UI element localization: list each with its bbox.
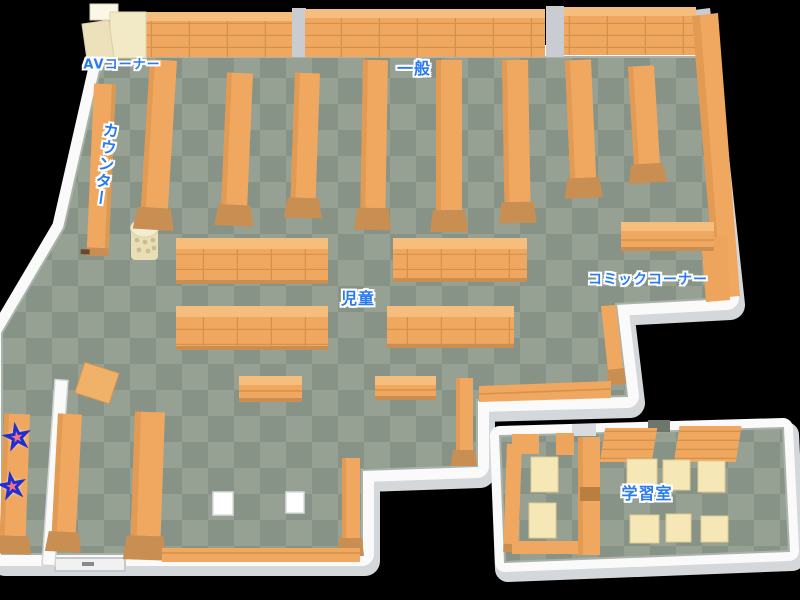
- white-table: [213, 492, 233, 515]
- kids-shelf: [393, 238, 527, 282]
- label-study-room: 学習室: [621, 480, 672, 504]
- kids-shelf: [176, 306, 328, 350]
- star-marker-icon: ★: [3, 422, 32, 453]
- kids-shelf: [176, 238, 328, 284]
- study-table: [698, 461, 725, 492]
- comic-corner-shelf: [621, 222, 714, 251]
- study-table: [531, 457, 558, 492]
- entrance-door: [55, 558, 125, 571]
- kids-low-table: [375, 376, 436, 400]
- wall-gap: [292, 8, 306, 57]
- door-handle-icon: [82, 562, 94, 566]
- kids-low-table: [239, 376, 302, 402]
- study-shelf: [674, 426, 742, 462]
- label-comic-corner: コミックコーナー: [588, 269, 708, 289]
- study-divider-shelf: [578, 437, 600, 555]
- kids-shelf: [387, 306, 514, 348]
- top-wall-bookshelf-center: [305, 9, 545, 57]
- study-room-door: [572, 424, 596, 436]
- label-general: 一般: [397, 55, 431, 79]
- study-table: [666, 514, 691, 542]
- label-children: 児童: [341, 285, 375, 309]
- label-av-corner: AVコーナー: [83, 54, 160, 73]
- top-wall-bookshelf-left: [129, 12, 292, 57]
- study-shelf: [600, 428, 657, 462]
- library-floor-map: AVコーナー 一般 カウンター 児童 コミックコーナー 学習室 ★ ★: [0, 0, 800, 600]
- study-table: [701, 516, 728, 542]
- study-table: [529, 503, 556, 538]
- wall-gap: [546, 6, 564, 57]
- study-table: [630, 515, 659, 543]
- white-table: [286, 492, 304, 513]
- bottom-wall-shelf: [162, 548, 360, 562]
- star-marker-icon: ★: [0, 471, 26, 502]
- map-canvas: [0, 0, 800, 600]
- top-wall-bookshelf-right: [564, 7, 696, 55]
